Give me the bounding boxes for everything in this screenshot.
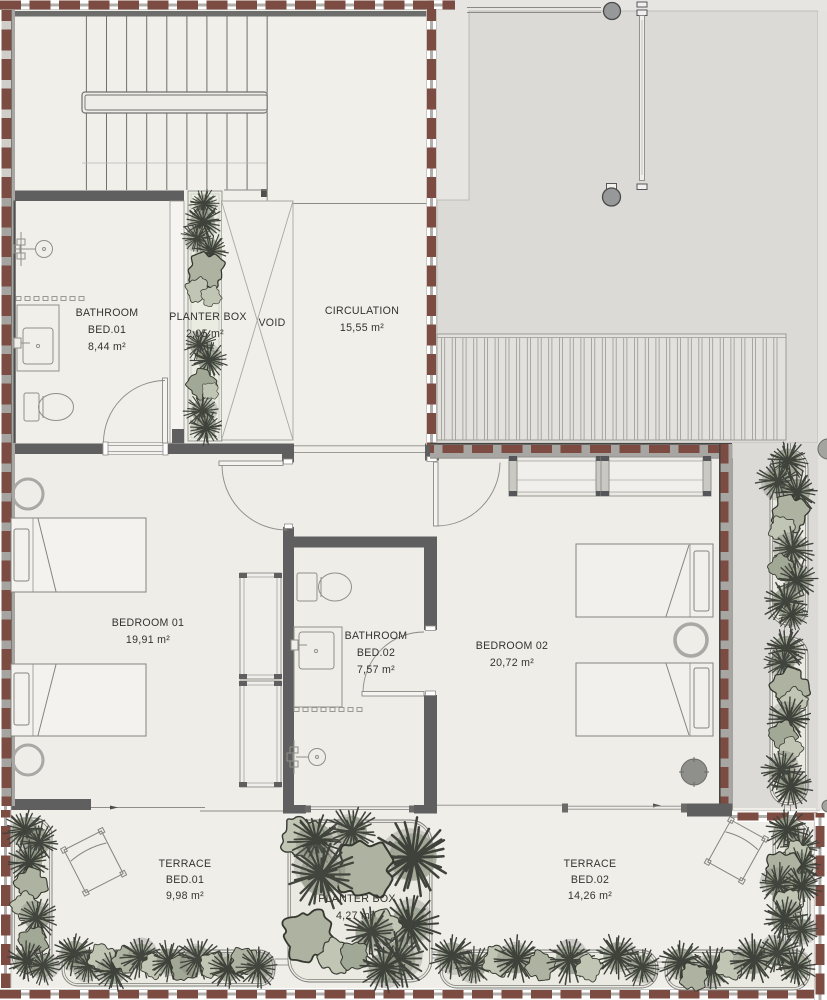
svg-text:BEDROOM 02: BEDROOM 02 [476,640,548,652]
svg-text:CIRCULATION: CIRCULATION [325,305,399,317]
svg-text:PLANTER BOX: PLANTER BOX [318,893,395,905]
svg-text:PLANTER BOX: PLANTER BOX [169,311,246,323]
svg-text:VOID: VOID [258,317,285,329]
svg-text:BED.01: BED.01 [88,324,126,336]
svg-text:TERRACE: TERRACE [159,858,212,870]
svg-text:BED.01: BED.01 [166,874,204,886]
svg-text:14,26 m²: 14,26 m² [568,890,612,902]
svg-text:BATHROOM: BATHROOM [76,307,139,319]
svg-text:7,57 m²: 7,57 m² [357,664,395,676]
svg-text:20,72 m²: 20,72 m² [490,657,534,669]
svg-text:TERRACE: TERRACE [564,858,617,870]
svg-text:8,44 m²: 8,44 m² [88,341,126,353]
svg-text:19,91 m²: 19,91 m² [126,634,170,646]
svg-text:BATHROOM: BATHROOM [345,630,408,642]
svg-text:4,27 m²: 4,27 m² [336,910,374,922]
svg-text:9,98 m²: 9,98 m² [166,890,204,902]
svg-text:15,55 m²: 15,55 m² [340,322,384,334]
svg-text:2,05 m²: 2,05 m² [186,328,224,340]
svg-text:BED.02: BED.02 [571,874,609,886]
svg-text:BED.02: BED.02 [357,647,395,659]
svg-text:BEDROOM 01: BEDROOM 01 [112,617,184,629]
